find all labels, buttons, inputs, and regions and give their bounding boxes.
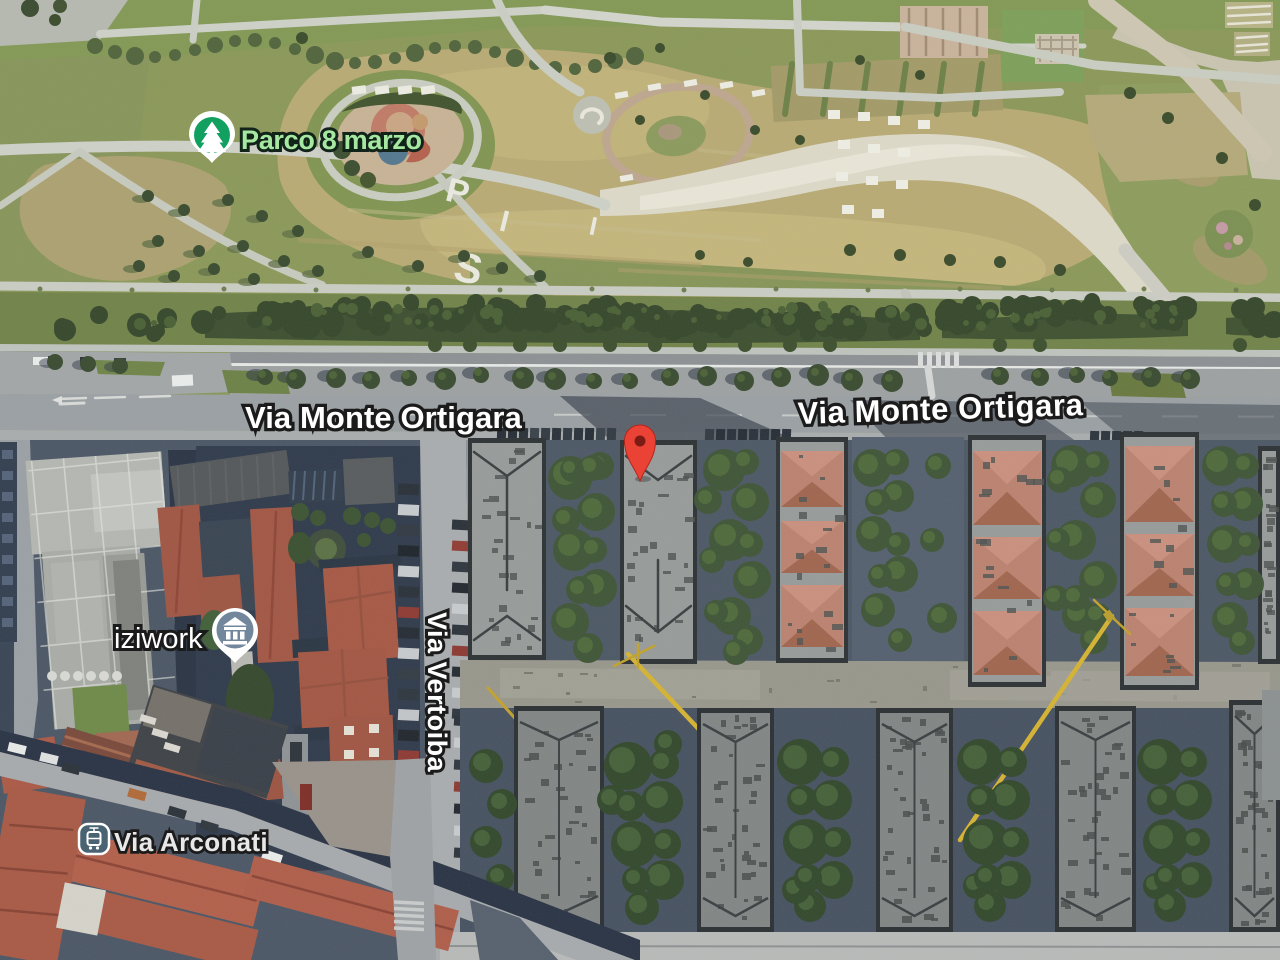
svg-text:Via Arconati: Via Arconati <box>114 827 268 857</box>
svg-text:Via Vertoiba: Via Vertoiba <box>422 612 452 773</box>
svg-text:Via Monte Ortigara: Via Monte Ortigara <box>245 400 523 435</box>
svg-text:iziwork: iziwork <box>114 623 203 655</box>
svg-text:Parco 8 marzo: Parco 8 marzo <box>241 125 422 155</box>
